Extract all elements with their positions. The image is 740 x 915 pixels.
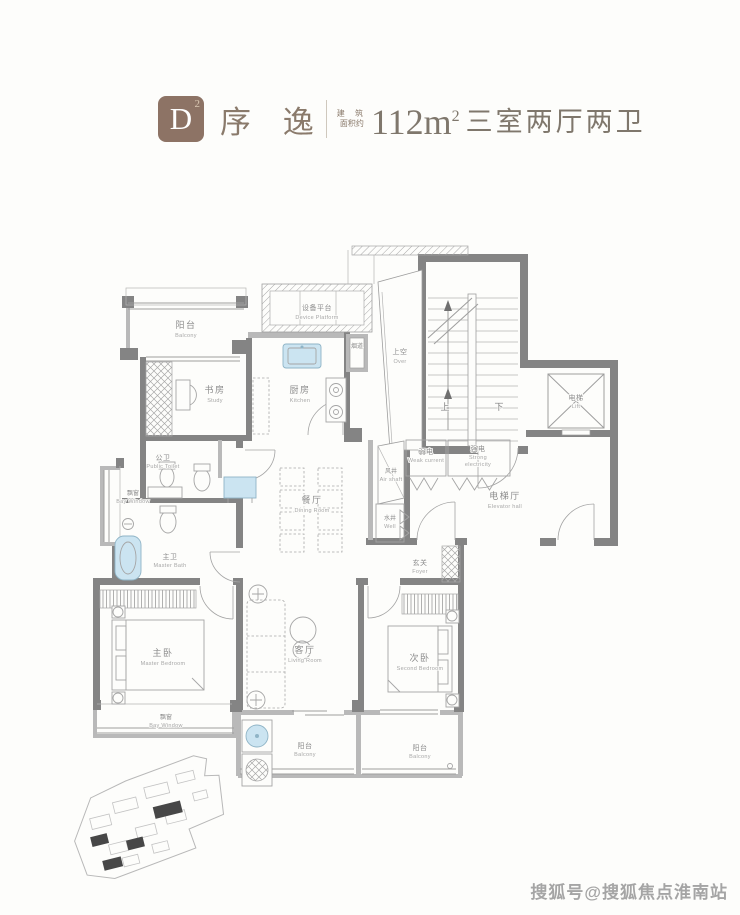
svg-text:Device Platform: Device Platform <box>295 315 338 321</box>
room-label-air-shaft: 风井 <box>385 467 397 475</box>
svg-text:Balcony: Balcony <box>294 752 316 758</box>
floorplan-drawing: 上 下 <box>0 0 740 915</box>
room-label-weak-current: 弱电 <box>419 447 434 456</box>
stair-down-label: 下 <box>494 402 503 412</box>
room-label-strong-current: 强电 <box>471 444 486 453</box>
svg-text:Balcony: Balcony <box>409 754 431 760</box>
watermark: 搜狐号@搜狐焦点淮南站 <box>530 878 728 903</box>
svg-text:Second Bedroom: Second Bedroom <box>397 666 444 672</box>
svg-text:Dining Room: Dining Room <box>294 508 329 514</box>
svg-text:Over: Over <box>393 359 406 365</box>
room-label-study: 书房 <box>204 384 225 395</box>
svg-text:electricity: electricity <box>465 462 491 468</box>
svg-text:Balcony: Balcony <box>175 333 197 339</box>
room-label-balcony-right: 阳台 <box>413 743 428 752</box>
svg-text:Elevator hall: Elevator hall <box>488 504 522 510</box>
svg-text:Bay Window: Bay Window <box>149 723 183 729</box>
room-label-dining: 餐厅 <box>301 494 322 505</box>
stair-up-label: 上 <box>440 402 449 412</box>
svg-text:Public Toilet: Public Toilet <box>146 464 179 470</box>
svg-text:Master Bedroom: Master Bedroom <box>141 661 186 667</box>
room-label-bay-window-left: 飘窗 <box>127 489 139 497</box>
room-label-well: 水井 <box>384 514 396 522</box>
room-label-second-bedroom: 次卧 <box>409 652 430 663</box>
room-label-balcony-top: 阳台 <box>175 319 196 330</box>
room-label-foyer: 玄关 <box>413 558 428 567</box>
svg-text:Master Bath: Master Bath <box>154 563 187 569</box>
svg-text:Kitchen: Kitchen <box>290 398 310 404</box>
room-label-lift: 电梯 <box>569 393 584 402</box>
room-label-public-toilet: 公卫 <box>156 454 171 462</box>
svg-text:Well: Well <box>384 524 396 530</box>
svg-text:Bay Window: Bay Window <box>116 499 150 505</box>
room-label-living-room: 客厅 <box>294 644 315 655</box>
svg-text:Study: Study <box>207 398 223 404</box>
room-label-device-platform: 设备平台 <box>302 303 332 312</box>
keyplan <box>62 751 238 886</box>
room-label-flue: 烟道 <box>351 342 363 350</box>
floorplan-page: D 2 序 逸 建 筑 面积约 112m2 三室两厅两卫 <box>0 0 740 915</box>
svg-text:Weak current: Weak current <box>408 458 444 464</box>
room-label-master-bedroom: 主卧 <box>152 647 173 658</box>
room-label-kitchen: 厨房 <box>289 384 310 395</box>
svg-text:Foyer: Foyer <box>412 569 428 575</box>
room-label-elevator-hall: 电梯厅 <box>489 490 521 501</box>
svg-text:Air shaft: Air shaft <box>380 477 403 483</box>
room-label-master-bath: 主卫 <box>163 552 178 561</box>
svg-text:Strong: Strong <box>469 455 487 461</box>
room-label-bay-window-bottom: 飘窗 <box>160 713 172 721</box>
room-label-balcony-mid: 阳台 <box>298 741 313 750</box>
room-label-over: 上空 <box>393 347 408 356</box>
staircase: 上 下 <box>428 294 518 446</box>
svg-text:Living Room: Living Room <box>288 658 322 664</box>
svg-text:Lift: Lift <box>572 404 581 410</box>
